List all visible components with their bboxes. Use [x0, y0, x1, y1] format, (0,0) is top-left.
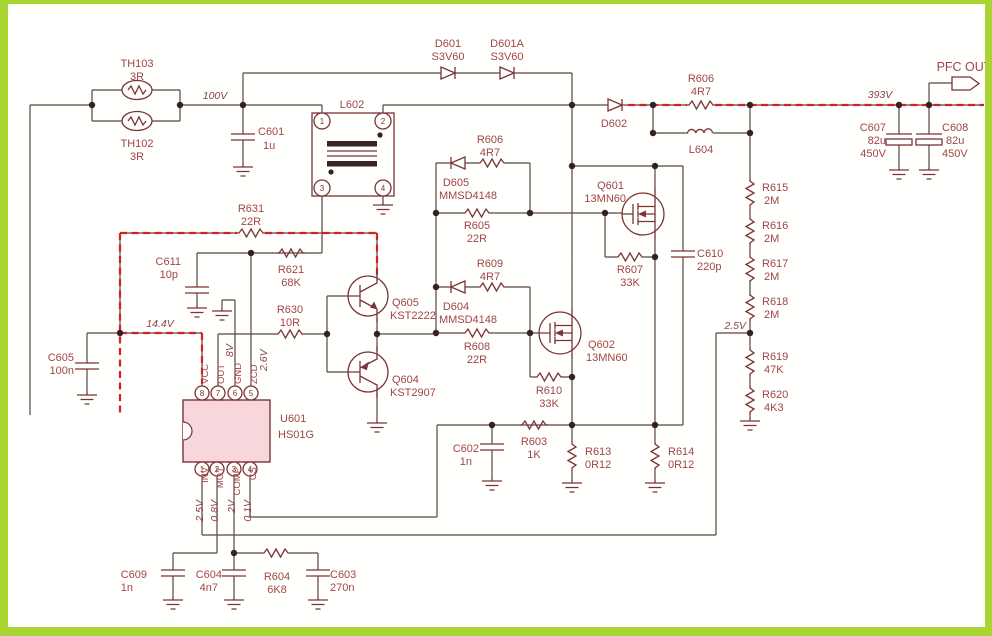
resistor-r631 [237, 229, 265, 237]
label-u601-ref: U601 [280, 413, 306, 425]
label-c602-ref: C602 [453, 443, 479, 455]
label-r606g-val: 4R7 [480, 147, 500, 159]
label-c608-ref: C608 [942, 122, 968, 134]
ground-ic [212, 308, 232, 320]
diode-d601 [441, 67, 455, 79]
ground-l602 [373, 202, 393, 214]
ground-r613 [562, 480, 582, 492]
inv-voltage: 2.5V [194, 499, 206, 523]
ic-pin5-num: 5 [249, 389, 254, 398]
label-th102-ref: TH102 [120, 138, 153, 150]
label-r605-val: 22R [467, 233, 487, 245]
label-pfc-out: PFC OUT [937, 60, 992, 74]
label-c611-val: 10p [160, 269, 178, 281]
ground-c608 [919, 167, 939, 179]
label-r631-ref: R631 [238, 203, 264, 215]
label-r606out-val: 4R7 [691, 86, 711, 98]
label-c611-ref: C611 [156, 256, 181, 268]
schematic-page: 1 2 3 4 8 7 6 5 1 2 3 4 VCC OUT GND ZCD … [0, 0, 992, 636]
l602-pin4: 4 [381, 184, 386, 193]
transistor-q604 [348, 346, 388, 398]
phase-dot-top [377, 132, 382, 137]
label-c604-val: 4n7 [200, 582, 218, 594]
label-r621-val: 68K [281, 277, 301, 289]
label-q602-ref: Q602 [588, 339, 615, 351]
wires [30, 73, 984, 597]
mosfet-q601 [622, 188, 664, 240]
comp-voltage: 2V [226, 499, 238, 514]
resistor-r619 [746, 348, 754, 376]
resistor-r630 [276, 330, 304, 338]
capacitor-c611 [185, 287, 209, 293]
label-c601-ref: C601 [258, 126, 284, 138]
diode-d601a [500, 67, 514, 79]
label-r620-val: 4K3 [764, 402, 784, 414]
resistor-r608 [463, 329, 491, 337]
ground-r620 [740, 418, 760, 430]
resistor-r607 [616, 253, 644, 261]
label-c603-val: 270n [330, 582, 354, 594]
label-d601-ref: D601 [435, 38, 461, 50]
label-r615-ref: R615 [762, 182, 788, 194]
ground-c611 [187, 305, 207, 317]
ic-u601: 8 7 6 5 1 2 3 4 VCC OUT GND ZCD INV MOT … [183, 343, 270, 522]
capacitor-c607 [886, 134, 912, 145]
label-d601a-ref: D601A [490, 38, 524, 50]
label-r609-ref: R609 [477, 258, 503, 270]
label-r606g-ref: R606 [477, 134, 503, 146]
label-d601-val: S3V60 [431, 51, 464, 63]
label-r616-val: 2M [764, 233, 779, 245]
label-r620-ref: R620 [762, 389, 788, 401]
zcd-voltage: 2.6V [258, 348, 270, 372]
transistor-q605 [348, 270, 388, 322]
label-r615-val: 2M [764, 195, 779, 207]
resistor-r606-out [687, 101, 715, 109]
capacitor-c601 [231, 134, 255, 140]
label-r610-val: 33K [539, 398, 559, 410]
ground-c609 [163, 597, 183, 609]
resistor-r605 [463, 209, 491, 217]
ground-c603 [308, 597, 328, 609]
diode-d605 [451, 157, 465, 169]
label-r614-val: 0R12 [668, 459, 694, 471]
resistor-r617 [746, 255, 754, 283]
label-r603-val: 1K [527, 449, 541, 461]
label-r630-val: 10R [280, 317, 300, 329]
ground-c601 [233, 164, 253, 176]
label-d602-ref: D602 [601, 118, 627, 130]
label-r614-ref: R614 [668, 446, 694, 458]
label-100v: 100V [203, 90, 229, 102]
label-th102-val: 3R [130, 151, 144, 163]
label-r608-ref: R608 [464, 341, 490, 353]
label-r610-ref: R610 [536, 385, 562, 397]
label-th103-ref: TH103 [120, 58, 153, 70]
capacitor-c608 [916, 134, 942, 145]
resistor-r620 [746, 386, 754, 414]
ground-q604 [367, 420, 387, 432]
label-c608-val: 82u [946, 135, 964, 147]
label-q601-ref: Q601 [597, 180, 624, 192]
resistor-r606-gate [478, 159, 506, 167]
capacitor-c604 [222, 570, 246, 576]
label-r619-val: 47K [764, 364, 784, 376]
ic-pin-inv: INV [200, 466, 211, 483]
phase-dot-bottom [328, 169, 333, 174]
label-r616-ref: R616 [762, 220, 788, 232]
ground-c604 [224, 597, 244, 609]
label-r617-val: 2M [764, 271, 779, 283]
label-r618-val: 2M [764, 309, 779, 321]
mosfet-q602 [539, 307, 581, 359]
out-voltage: 8V [224, 343, 236, 357]
label-c607-val2: 450V [860, 148, 886, 160]
ic-pin-mot: MOT [215, 467, 226, 488]
resistor-r615 [746, 179, 754, 207]
label-c607-val: 82u [868, 135, 886, 147]
label-q605-ref: Q605 [392, 297, 419, 309]
label-r630-ref: R630 [277, 304, 303, 316]
label-r607-ref: R607 [617, 264, 643, 276]
label-r609-val: 4R7 [480, 271, 500, 283]
ic-pin6-num: 6 [233, 389, 238, 398]
diode-d602 [608, 99, 622, 111]
label-r617-ref: R617 [762, 258, 788, 270]
label-c609-val: 1n [121, 582, 133, 594]
cs-voltage: 0.1V [242, 499, 254, 522]
label-q605-val: KST2222 [390, 310, 436, 322]
label-r618-ref: R618 [762, 296, 788, 308]
label-q604-val: KST2907 [390, 387, 436, 399]
transformer-l602: 1 2 3 4 [312, 113, 394, 196]
ic-pin7-num: 7 [216, 389, 221, 398]
ic-pin-out: OUT [216, 364, 227, 384]
label-d604-val: MMSD4148 [439, 314, 497, 326]
label-q601-val: 13MN60 [584, 193, 626, 205]
capacitor-c605 [75, 363, 99, 369]
label-u601-part: HS01G [278, 429, 314, 441]
schematic-canvas: 1 2 3 4 8 7 6 5 1 2 3 4 VCC OUT GND ZCD … [0, 0, 992, 636]
inductor-l604 [688, 129, 713, 133]
label-c604-ref: C604 [196, 569, 222, 581]
label-d604-ref: D604 [443, 301, 469, 313]
label-d605-ref: D605 [443, 177, 469, 189]
label-d601a-val: S3V60 [490, 51, 523, 63]
ground-c605 [77, 392, 97, 404]
capacitor-c609 [161, 570, 185, 576]
label-r608-val: 22R [467, 354, 487, 366]
label-l602-ref: L602 [340, 99, 364, 111]
label-r631-val: 22R [241, 216, 261, 228]
l602-pin2: 2 [381, 117, 386, 126]
label-c605-ref: C605 [48, 352, 74, 364]
l602-pin3: 3 [320, 184, 325, 193]
label-l604-ref: L604 [689, 144, 713, 156]
label-r613-val: 0R12 [585, 459, 611, 471]
label-c601-val: 1u [263, 140, 275, 152]
label-r603-ref: R603 [521, 436, 547, 448]
label-r604-ref: R604 [264, 571, 290, 583]
label-r613-ref: R613 [585, 446, 611, 458]
l602-pin1: 1 [320, 117, 325, 126]
mot-voltage: 0.8V [209, 499, 221, 522]
label-r604-val: 6K8 [267, 584, 287, 596]
resistor-r609 [478, 283, 506, 291]
label-r619-ref: R619 [762, 351, 788, 363]
label-c608-val2: 450V [942, 148, 968, 160]
label-r607-val: 33K [620, 277, 640, 289]
label-th103-val: 3R [130, 71, 144, 83]
label-393v: 393V [868, 89, 894, 101]
ic-pin-vcc: VCC [200, 364, 211, 384]
label-c605-val: 100n [50, 365, 74, 377]
ground-c607 [889, 167, 909, 179]
resistor-r614 [651, 442, 659, 470]
ic-pin8-num: 8 [200, 389, 205, 398]
label-r605-ref: R605 [464, 220, 490, 232]
pfc-out-pointer [952, 77, 979, 90]
thermistor-th102 [122, 112, 152, 131]
label-q602-val: 13MN60 [586, 352, 628, 364]
label-q604-ref: Q604 [392, 374, 419, 386]
ic-pin-comp: COMP [232, 467, 243, 496]
diode-d604 [451, 281, 465, 293]
resistor-r616 [746, 217, 754, 245]
capacitor-c602 [480, 444, 504, 450]
resistor-r613 [568, 442, 576, 470]
label-r621-ref: R621 [278, 264, 304, 276]
capacitor-c610 [671, 251, 695, 257]
resistor-r604 [262, 549, 290, 557]
label-d605-val: MMSD4148 [439, 190, 497, 202]
ic-pin-cs: CS [248, 467, 259, 480]
resistor-r618 [746, 293, 754, 321]
thermistor-th103 [122, 81, 152, 100]
resistor-r610 [535, 373, 563, 381]
label-c609-ref: C609 [121, 569, 147, 581]
label-r606out-ref: R606 [688, 73, 714, 85]
ground-c602 [482, 478, 502, 490]
capacitor-c603 [306, 570, 330, 576]
label-c602-val: 1n [460, 456, 472, 468]
label-2v5: 2.5V [723, 320, 747, 332]
ground-r614 [645, 480, 665, 492]
label-c603-ref: C603 [330, 569, 356, 581]
label-14v4: 14.4V [146, 318, 174, 330]
label-c610-ref: C610 [697, 248, 723, 260]
label-c607-ref: C607 [860, 122, 886, 134]
ic-pin-gnd: GND [233, 363, 244, 384]
label-c610-val: 220p [697, 261, 721, 273]
